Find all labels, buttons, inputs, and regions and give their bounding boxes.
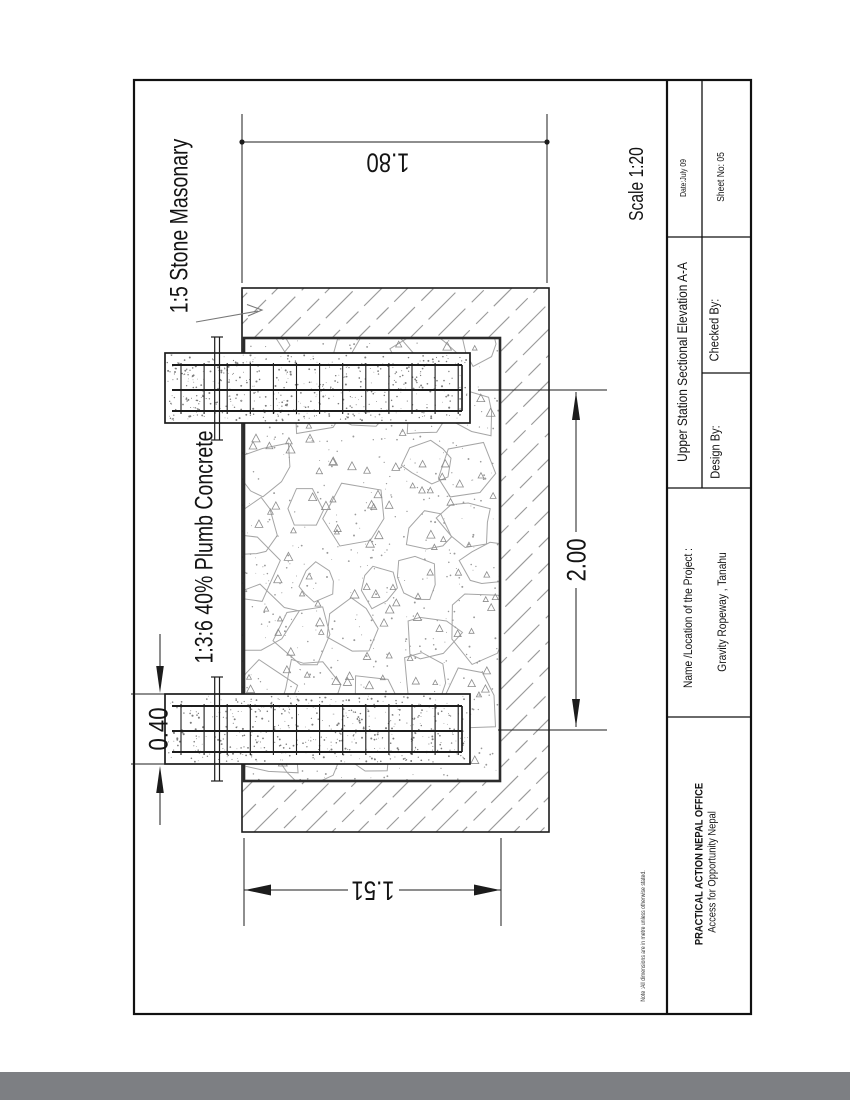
sheet-note: Note :All dimensions are in metre unless… xyxy=(641,870,647,1001)
plumb-concrete-label: 1:3:6 40% Plumb Concrete xyxy=(193,430,218,663)
dim-value-top-width: 1.80 xyxy=(366,149,409,176)
rcc-band-lower xyxy=(165,694,470,764)
titleblock-project-value: Gravity Ropeway , Tanahu xyxy=(716,552,728,671)
rcc-band-upper xyxy=(165,353,470,423)
bottom-bar xyxy=(0,1072,850,1100)
dimension-top-width xyxy=(239,114,549,283)
scale-label: Scale 1:20 xyxy=(627,147,647,221)
stone-masonry-label: 1:5 Stone Masonary xyxy=(168,139,193,314)
titleblock-drawing-title: Upper Station Sectional Elevation A-A xyxy=(675,262,689,462)
drawing-sheet-page: 1:5 Stone Masonary 1:3:6 40% Plumb Concr… xyxy=(0,0,850,1100)
titleblock-checked-by: Checked By: xyxy=(708,299,721,362)
dim-value-height: 2.00 xyxy=(564,538,591,581)
titleblock-sheet-no: Sheet No: 05 xyxy=(717,152,727,202)
titleblock-date: Date:July 09 xyxy=(680,159,688,197)
titleblock-org-name: PRACTICAL ACTION NEPAL OFFICE xyxy=(695,783,706,945)
titleblock-org-subtitle: Access for Opportunity Nepal xyxy=(708,811,719,933)
dim-value-band-thickness: 0.40 xyxy=(146,707,173,750)
titleblock-design-by: Design By: xyxy=(709,425,722,478)
titleblock-project-label: Name /Location of the Project : xyxy=(682,548,694,688)
dim-value-bottom-width: 1.51 xyxy=(351,877,394,904)
